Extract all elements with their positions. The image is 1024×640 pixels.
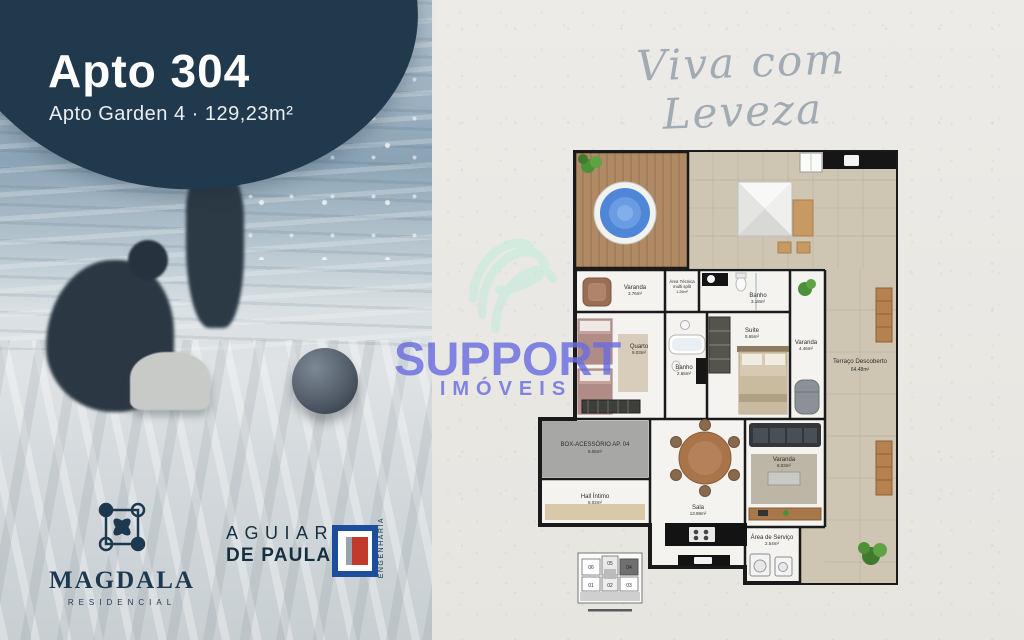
room-area: 6.02m² (588, 500, 603, 505)
room-area: 3.18m² (751, 299, 766, 304)
key-plan-unit: 03 (626, 583, 632, 589)
gazebo (738, 182, 792, 236)
beach-ball (292, 348, 358, 414)
terrace-bottom-patch (800, 527, 825, 583)
magdala-emblem-icon (94, 496, 150, 558)
sandcastle (130, 352, 210, 410)
room-area: 2.65m² (677, 371, 692, 376)
key-plan-unit: 06 (588, 565, 594, 571)
terrace-counter (800, 152, 896, 172)
watermark-swirl-icon (456, 226, 566, 341)
room-label: Terraço Descoberto (833, 358, 888, 365)
room-area: 4.46m² (799, 346, 814, 351)
room-area: 9.03m² (632, 350, 647, 355)
tagline-script: Viva com Leveza (550, 31, 933, 142)
room-area: 6.05m² (588, 449, 603, 454)
room-area: 2.54m² (765, 541, 780, 546)
armchair (583, 278, 611, 306)
flyer-canvas: Apto 304 Apto Garden 4 · 129,23m² MAGDAL… (0, 0, 1024, 640)
aguiar-vertical-label: ENGENHARIA (378, 517, 385, 578)
room-area: 3.76m² (628, 291, 643, 296)
key-plan-caption-bar (588, 609, 632, 612)
key-plan: 06 05 04 01 02 03 (578, 553, 642, 612)
room-label: Hall Íntimo (581, 493, 610, 500)
page-subtitle: Apto Garden 4 · 129,23m² (49, 103, 389, 126)
room-area: 13.98m² (690, 511, 707, 516)
room-label: Área de Serviço (751, 534, 794, 541)
hall-rug (545, 504, 645, 520)
room-area: 1.26m² (676, 290, 689, 294)
room-label: BOX-ACESSÓRIO AP. 04 (561, 441, 631, 448)
aguiar-mark-icon (332, 525, 378, 577)
key-plan-unit: 01 (588, 583, 594, 589)
key-plan-unit-highlighted: 04 (626, 565, 632, 571)
magdala-tagline: RESIDENCIAL (44, 598, 200, 607)
key-plan-unit: 05 (607, 561, 613, 567)
watermark-sub: IMÓVEIS (394, 378, 618, 401)
key-plan-unit: 02 (607, 583, 613, 589)
room-area: 8.03m² (777, 463, 792, 468)
page-title: Apto 304 (48, 44, 388, 98)
magdala-logo: MAGDALA RESIDENCIAL (44, 496, 200, 607)
room-area: 64.48m² (851, 367, 870, 373)
magdala-name: MAGDALA (44, 567, 200, 595)
room-area: 8.65m² (745, 334, 760, 339)
aguiar-logo: AGUIAR DE PAULA ENGENHARIA (226, 523, 398, 567)
child-head (128, 240, 168, 280)
room-label-sub: multi split (673, 284, 692, 289)
